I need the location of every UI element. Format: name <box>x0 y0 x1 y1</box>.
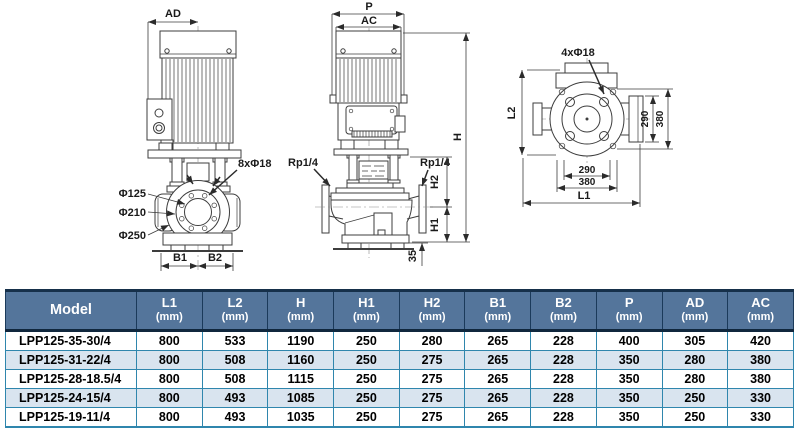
dim-label-h: H <box>452 133 464 141</box>
col-name: P <box>597 296 662 310</box>
dim-label-l1: L1 <box>578 190 591 202</box>
value-cell: 275 <box>399 370 465 389</box>
value-cell: 493 <box>202 389 268 408</box>
model-cell: LPP125-24-15/4 <box>6 389 137 408</box>
value-cell: 1115 <box>268 370 334 389</box>
dim-label-290-bottom: 290 <box>579 165 596 176</box>
model-cell: LPP125-19-11/4 <box>6 408 137 428</box>
value-cell: 265 <box>465 370 531 389</box>
label-rp14-right: Rp1/4 <box>420 157 451 169</box>
col-unit: (mm) <box>465 311 530 324</box>
table-row: LPP125-35-30/4 800 533 1190 250 280 265 … <box>6 331 794 351</box>
value-cell: 330 <box>728 408 794 428</box>
value-cell: 380 <box>728 370 794 389</box>
label-phi250: Φ250 <box>119 230 146 242</box>
value-cell: 1085 <box>268 389 334 408</box>
col-header-l2: L2(mm) <box>202 291 268 331</box>
value-cell: 800 <box>137 389 203 408</box>
value-cell: 280 <box>399 331 465 351</box>
datasheet-page: AD <box>0 0 800 438</box>
value-cell: 380 <box>728 351 794 370</box>
value-cell: 350 <box>596 370 662 389</box>
col-unit: (mm) <box>400 311 465 324</box>
table-row: LPP125-28-18.5/4 800 508 1115 250 275 26… <box>6 370 794 389</box>
value-cell: 800 <box>137 370 203 389</box>
technical-drawings: AD <box>0 0 800 289</box>
col-header-model: Model <box>6 291 137 331</box>
dim-label-h1: H1 <box>429 218 441 232</box>
label-4xphi18: 4xΦ18 <box>561 47 595 59</box>
col-header-ad: AD(mm) <box>662 291 728 331</box>
value-cell: 275 <box>399 408 465 428</box>
value-cell: 350 <box>596 389 662 408</box>
value-cell: 250 <box>334 408 400 428</box>
col-name: B1 <box>465 296 530 310</box>
value-cell: 265 <box>465 351 531 370</box>
dimension-table-wrap: Model L1(mm) L2(mm) H(mm) H1(mm) H2(mm) … <box>5 289 794 428</box>
top-view-drawing: 4xΦ18 L2 290 380 290 380 <box>506 47 673 207</box>
value-cell: 1190 <box>268 331 334 351</box>
label-phi125: Φ125 <box>119 188 146 200</box>
dim-label-35: 35 <box>407 250 419 262</box>
value-cell: 265 <box>465 408 531 428</box>
value-cell: 493 <box>202 408 268 428</box>
col-header-l1: L1(mm) <box>137 291 203 331</box>
value-cell: 250 <box>334 370 400 389</box>
col-name: AC <box>728 296 793 310</box>
value-cell: 228 <box>531 351 597 370</box>
col-header-ac: AC(mm) <box>728 291 794 331</box>
col-unit: (mm) <box>597 311 662 324</box>
front-view-drawing: P AC <box>288 1 470 266</box>
value-cell: 350 <box>596 351 662 370</box>
dim-label-h2: H2 <box>429 175 441 189</box>
col-name: AD <box>663 296 728 310</box>
value-cell: 305 <box>662 331 728 351</box>
dim-label-l2: L2 <box>506 107 518 120</box>
value-cell: 228 <box>531 408 597 428</box>
value-cell: 350 <box>596 408 662 428</box>
col-header-b1: B1(mm) <box>465 291 531 331</box>
side-view-drawing: AD <box>119 8 272 272</box>
table-row: LPP125-24-15/4 800 493 1085 250 275 265 … <box>6 389 794 408</box>
col-unit: (mm) <box>531 311 596 324</box>
value-cell: 250 <box>662 408 728 428</box>
col-name: H1 <box>334 296 399 310</box>
table-row: LPP125-19-11/4 800 493 1035 250 275 265 … <box>6 408 794 428</box>
dimension-table: Model L1(mm) L2(mm) H(mm) H1(mm) H2(mm) … <box>5 289 794 428</box>
table-row: LPP125-31-22/4 800 508 1160 250 275 265 … <box>6 351 794 370</box>
value-cell: 800 <box>137 351 203 370</box>
value-cell: 800 <box>137 331 203 351</box>
dim-label-b2: B2 <box>208 252 222 264</box>
value-cell: 250 <box>662 389 728 408</box>
col-header-h1: H1(mm) <box>334 291 400 331</box>
col-name: L1 <box>137 296 202 310</box>
value-cell: 420 <box>728 331 794 351</box>
value-cell: 330 <box>728 389 794 408</box>
value-cell: 228 <box>531 370 597 389</box>
col-name: H2 <box>400 296 465 310</box>
value-cell: 250 <box>334 331 400 351</box>
col-unit: (mm) <box>137 311 202 324</box>
label-8xphi18: 8xΦ18 <box>238 158 272 170</box>
col-name: H <box>268 296 333 310</box>
model-cell: LPP125-28-18.5/4 <box>6 370 137 389</box>
dim-label-ad: AD <box>165 8 181 20</box>
value-cell: 228 <box>531 389 597 408</box>
dim-label-290-right: 290 <box>640 110 651 127</box>
label-phi210: Φ210 <box>119 207 146 219</box>
value-cell: 275 <box>399 389 465 408</box>
dim-label-380-bottom: 380 <box>579 177 596 188</box>
label-rp14-left: Rp1/4 <box>288 157 319 169</box>
value-cell: 508 <box>202 370 268 389</box>
value-cell: 280 <box>662 351 728 370</box>
value-cell: 275 <box>399 351 465 370</box>
dim-label-p: P <box>365 1 372 13</box>
model-cell: LPP125-35-30/4 <box>6 331 137 351</box>
dim-label-b1: B1 <box>173 252 187 264</box>
col-unit: (mm) <box>268 311 333 324</box>
col-name: B2 <box>531 296 596 310</box>
value-cell: 228 <box>531 331 597 351</box>
value-cell: 1160 <box>268 351 334 370</box>
col-header-b2: B2(mm) <box>531 291 597 331</box>
col-unit: (mm) <box>663 311 728 324</box>
value-cell: 533 <box>202 331 268 351</box>
col-header-h2: H2(mm) <box>399 291 465 331</box>
col-name: L2 <box>203 296 268 310</box>
value-cell: 265 <box>465 331 531 351</box>
col-header-p: P(mm) <box>596 291 662 331</box>
col-unit: (mm) <box>203 311 268 324</box>
value-cell: 1035 <box>268 408 334 428</box>
col-header-h: H(mm) <box>268 291 334 331</box>
value-cell: 280 <box>662 370 728 389</box>
value-cell: 800 <box>137 408 203 428</box>
dim-label-ac: AC <box>361 15 377 27</box>
header-row: Model L1(mm) L2(mm) H(mm) H1(mm) H2(mm) … <box>6 291 794 331</box>
col-unit: (mm) <box>334 311 399 324</box>
value-cell: 250 <box>334 389 400 408</box>
value-cell: 265 <box>465 389 531 408</box>
model-cell: LPP125-31-22/4 <box>6 351 137 370</box>
value-cell: 250 <box>334 351 400 370</box>
value-cell: 400 <box>596 331 662 351</box>
value-cell: 508 <box>202 351 268 370</box>
col-unit: (mm) <box>728 311 793 324</box>
dim-label-380-right: 380 <box>655 110 666 127</box>
